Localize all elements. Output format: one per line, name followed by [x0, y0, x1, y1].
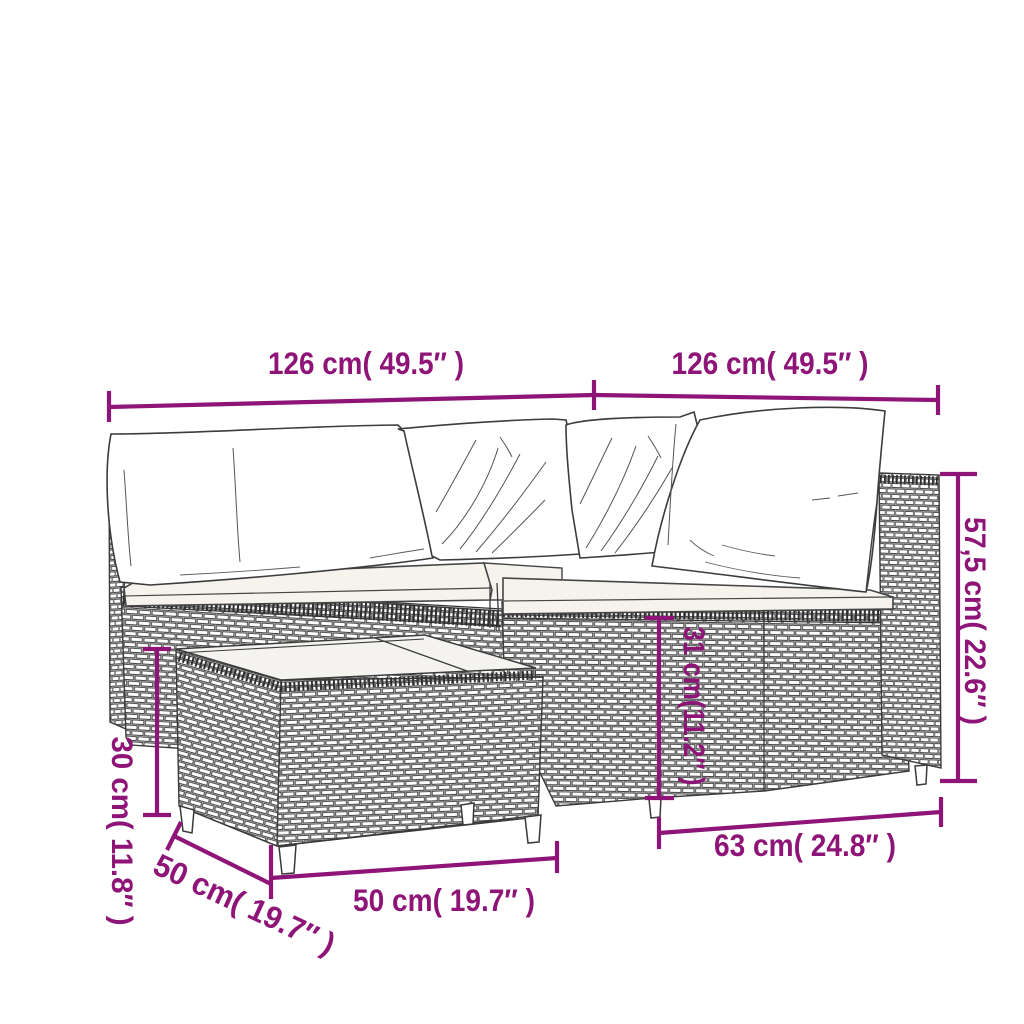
svg-text:126 cm( 49.5″ ): 126 cm( 49.5″ ) — [268, 345, 464, 381]
svg-text:30 cm( 11.8″ ): 30 cm( 11.8″ ) — [105, 737, 138, 926]
svg-text:57,5 cm( 22.6″ ): 57,5 cm( 22.6″ ) — [958, 517, 991, 725]
svg-text:50 cm( 19.7″ ): 50 cm( 19.7″ ) — [353, 882, 535, 918]
svg-text:63 cm( 24.8″ ): 63 cm( 24.8″ ) — [714, 827, 896, 863]
svg-text:126 cm( 49.5″ ): 126 cm( 49.5″ ) — [672, 345, 869, 381]
svg-text:31 cm(11.2″ ): 31 cm(11.2″ ) — [677, 627, 710, 786]
